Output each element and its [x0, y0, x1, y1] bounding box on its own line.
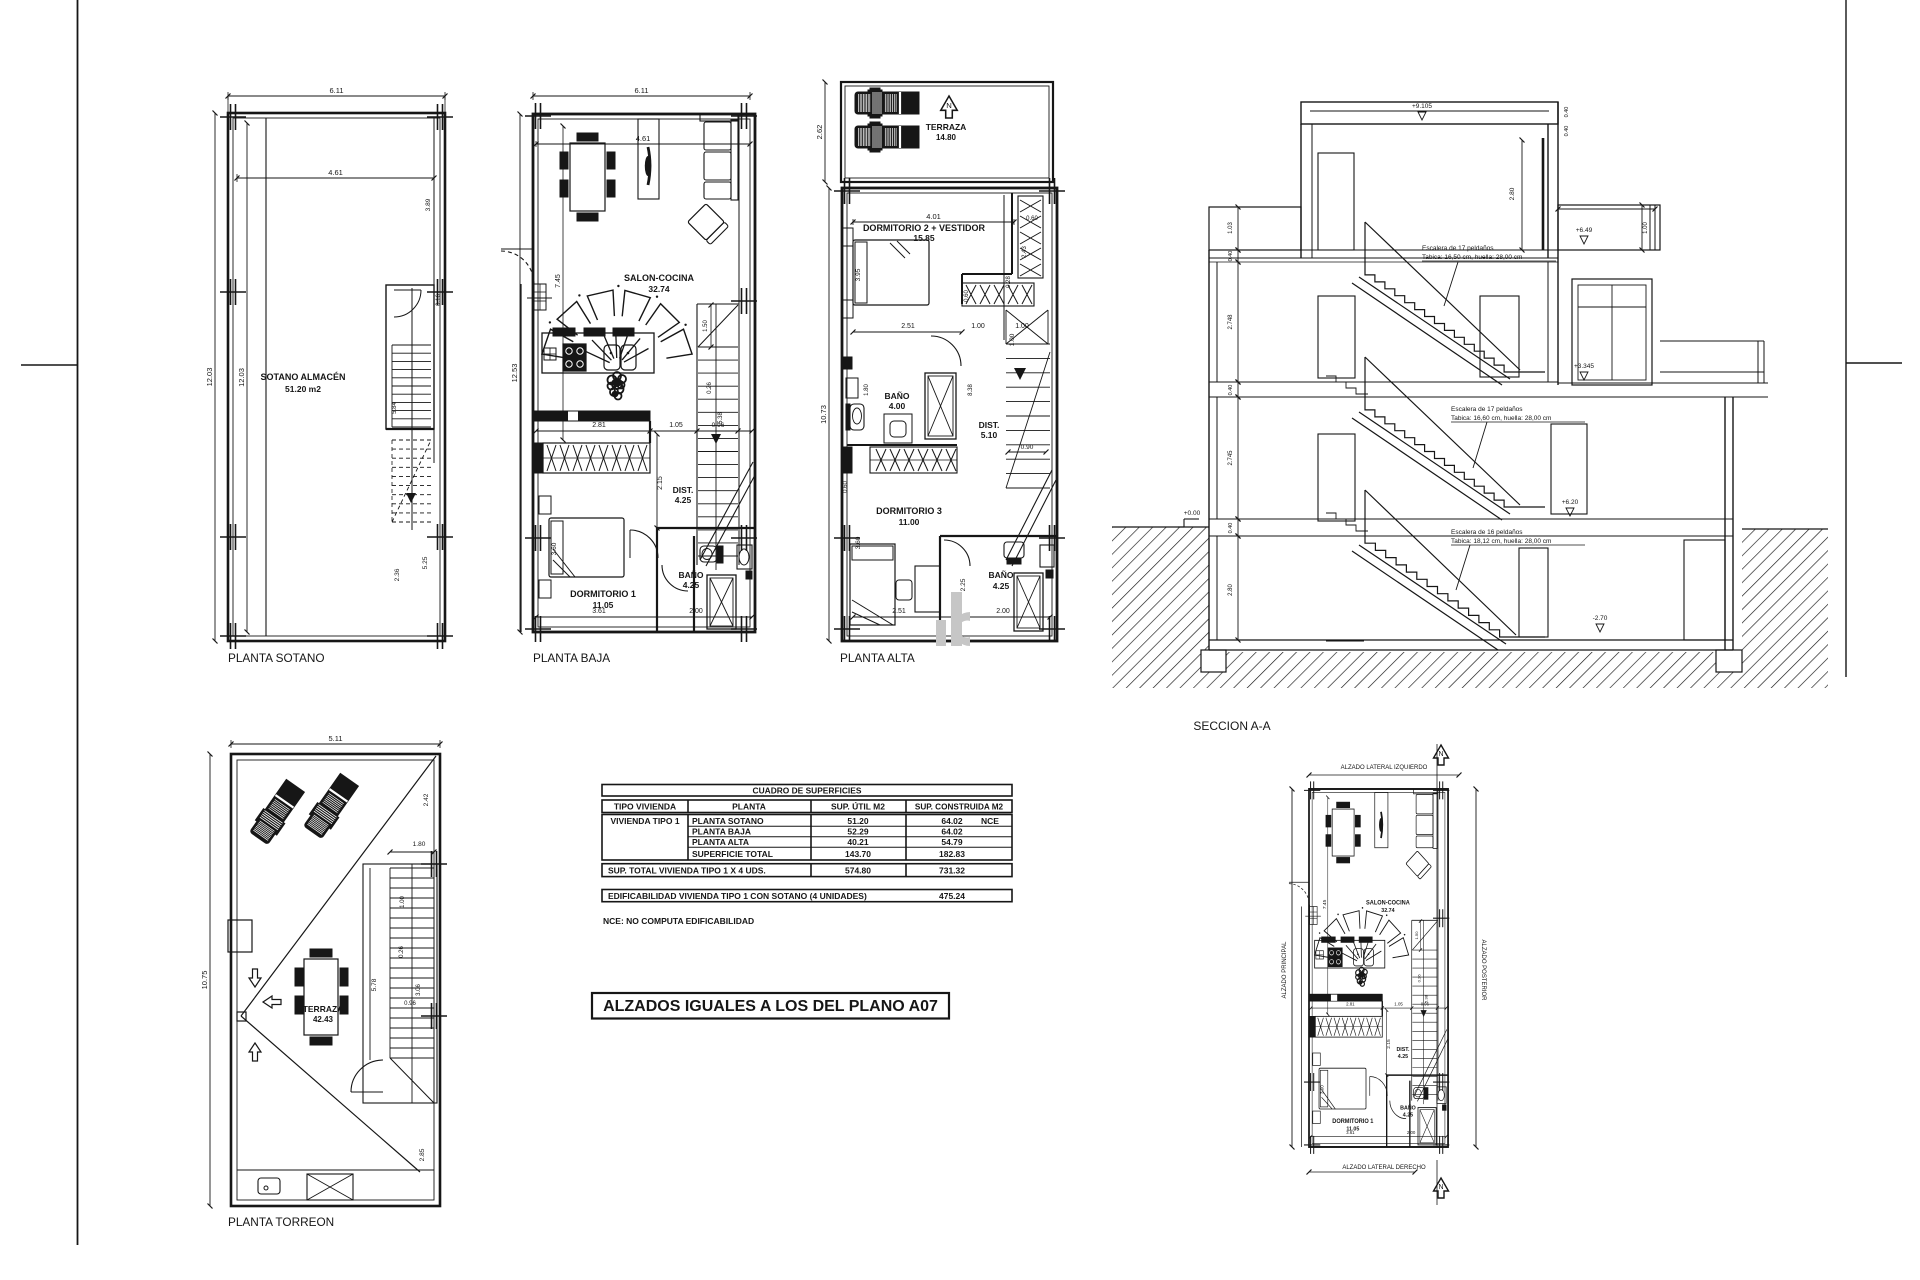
svg-text:SUPERFICIE TOTAL: SUPERFICIE TOTAL — [692, 849, 773, 859]
svg-text:VIVIENDA TIPO 1: VIVIENDA TIPO 1 — [610, 816, 679, 826]
svg-text:5.11: 5.11 — [328, 734, 342, 743]
svg-text:Escalera de 16 peldaños: Escalera de 16 peldaños — [1451, 529, 1523, 536]
svg-text:BAÑO: BAÑO — [678, 570, 703, 580]
svg-text:BAÑO: BAÑO — [884, 391, 909, 401]
svg-text:N: N — [1438, 1184, 1443, 1191]
svg-text:51.20 m2: 51.20 m2 — [285, 384, 321, 394]
svg-text:15.85: 15.85 — [913, 233, 935, 243]
svg-text:4.25: 4.25 — [683, 580, 700, 590]
svg-text:-2.70: -2.70 — [1593, 615, 1608, 622]
svg-text:3.60: 3.60 — [551, 542, 558, 555]
svg-text:2.62: 2.62 — [815, 125, 824, 140]
svg-text:SOTANO ALMACÉN: SOTANO ALMACÉN — [261, 372, 346, 382]
svg-text:4.61: 4.61 — [328, 168, 343, 177]
svg-text:4.25: 4.25 — [675, 495, 692, 505]
svg-text:3.95: 3.95 — [855, 268, 862, 281]
svg-text:0.40: 0.40 — [1228, 251, 1234, 262]
svg-text:10.73: 10.73 — [819, 405, 828, 424]
svg-text:51.20: 51.20 — [847, 816, 869, 826]
svg-text:PLANTA BAJA: PLANTA BAJA — [533, 651, 610, 665]
svg-text:2.745: 2.745 — [1228, 450, 1234, 466]
svg-text:7.45: 7.45 — [1322, 899, 1327, 909]
svg-text:1.03: 1.03 — [1228, 222, 1234, 234]
svg-text:SUP. ÚTIL M2: SUP. ÚTIL M2 — [831, 801, 885, 812]
svg-text:CUADRO DE SUPERFICIES: CUADRO DE SUPERFICIES — [753, 786, 862, 796]
svg-text:2.42: 2.42 — [423, 793, 430, 806]
svg-text:1.00: 1.00 — [971, 323, 985, 330]
svg-text:DORMITORIO 1: DORMITORIO 1 — [570, 589, 636, 599]
svg-text:64.02: 64.02 — [941, 827, 963, 837]
svg-text:0.26: 0.26 — [399, 946, 405, 958]
svg-text:2.43: 2.43 — [1022, 246, 1028, 258]
svg-text:NCE: NCE — [981, 816, 999, 826]
svg-text:0.40: 0.40 — [1564, 126, 1570, 137]
svg-text:1.80: 1.80 — [864, 384, 870, 396]
svg-text:0.26: 0.26 — [1417, 974, 1422, 983]
svg-text:42.43: 42.43 — [313, 1015, 334, 1024]
svg-text:SECCION A-A: SECCION A-A — [1193, 719, 1270, 733]
svg-text:0.40: 0.40 — [1228, 385, 1234, 396]
svg-text:NCE: NO COMPUTA EDIFICABILIDA: NCE: NO COMPUTA EDIFICABILIDAD — [603, 916, 754, 926]
svg-text:64.02: 64.02 — [941, 816, 963, 826]
svg-text:11.00: 11.00 — [899, 517, 920, 527]
svg-text:32.74: 32.74 — [1381, 908, 1395, 914]
svg-text:5.25: 5.25 — [422, 556, 429, 569]
svg-text:ALZADOS IGUALES A LOS DEL PLAN: ALZADOS IGUALES A LOS DEL PLANO A07 — [603, 998, 938, 1015]
svg-text:143.70: 143.70 — [845, 849, 871, 859]
svg-text:2.00: 2.00 — [996, 608, 1010, 615]
svg-text:3.60: 3.60 — [1320, 1085, 1325, 1094]
svg-text:Tabica: 16,50 cm, huella: 28,0: Tabica: 16,50 cm, huella: 28,00 cm — [1422, 254, 1522, 261]
svg-text:0.60: 0.60 — [843, 481, 849, 493]
svg-text:PLANTA: PLANTA — [732, 802, 766, 812]
svg-text:2.00: 2.00 — [689, 608, 703, 615]
svg-text:6.11: 6.11 — [329, 86, 343, 95]
svg-text:3.61: 3.61 — [592, 608, 606, 615]
svg-text:SUP. CONSTRUIDA M2: SUP. CONSTRUIDA M2 — [915, 803, 1004, 812]
svg-text:TIPO VIVIENDA: TIPO VIVIENDA — [614, 802, 676, 812]
svg-text:4.00: 4.00 — [889, 401, 906, 411]
svg-text:52.29: 52.29 — [847, 827, 869, 837]
svg-text:5.10: 5.10 — [981, 430, 998, 440]
svg-text:2.80: 2.80 — [1509, 187, 1516, 200]
svg-text:2.15: 2.15 — [657, 476, 664, 490]
svg-text:3.61: 3.61 — [1346, 1130, 1355, 1135]
svg-text:2.81: 2.81 — [1346, 1001, 1355, 1006]
svg-text:182.83: 182.83 — [939, 849, 965, 859]
svg-text:12.03: 12.03 — [237, 368, 246, 387]
svg-text:BAÑO: BAÑO — [988, 570, 1013, 580]
svg-text:N: N — [946, 101, 952, 110]
svg-text:2.25: 2.25 — [960, 578, 967, 591]
svg-text:DORMITORIO 3: DORMITORIO 3 — [876, 506, 942, 516]
svg-text:2.748: 2.748 — [1228, 314, 1234, 330]
svg-text:731.32: 731.32 — [939, 866, 965, 876]
svg-text:SALON-COCINA: SALON-COCINA — [1366, 900, 1410, 906]
svg-text:8.38: 8.38 — [968, 384, 974, 396]
svg-text:0.40: 0.40 — [1228, 523, 1234, 534]
svg-text:10.75: 10.75 — [200, 971, 209, 990]
svg-text:6.11: 6.11 — [634, 86, 648, 95]
svg-text:0.60: 0.60 — [1026, 216, 1038, 222]
svg-text:ALZADO POSTERIOR: ALZADO POSTERIOR — [1480, 939, 1486, 1001]
svg-text:1.05: 1.05 — [669, 422, 683, 429]
svg-text:2.15: 2.15 — [1386, 1039, 1391, 1049]
svg-text:PLANTA TORREON: PLANTA TORREON — [228, 1215, 334, 1229]
svg-text:TERRAZA: TERRAZA — [926, 122, 967, 132]
svg-text:SALON-COCINA: SALON-COCINA — [624, 273, 694, 283]
svg-text:ALZADO LATERAL DERECHO: ALZADO LATERAL DERECHO — [1342, 1165, 1426, 1171]
svg-text:4.01: 4.01 — [926, 212, 941, 221]
svg-text:0.60: 0.60 — [964, 290, 970, 302]
svg-text:1.50: 1.50 — [703, 320, 709, 332]
svg-text:7.45: 7.45 — [555, 274, 562, 288]
svg-text:DIST.: DIST. — [673, 485, 694, 495]
svg-text:475.24: 475.24 — [939, 891, 965, 901]
svg-text:2.80: 2.80 — [1228, 584, 1234, 596]
svg-text:Escalera de 17 peldaños: Escalera de 17 peldaños — [1451, 406, 1523, 413]
svg-text:40.21: 40.21 — [847, 837, 869, 847]
svg-text:+0.00: +0.00 — [1184, 510, 1201, 517]
svg-text:0.90: 0.90 — [1021, 444, 1034, 451]
svg-text:PLANTA ALTA: PLANTA ALTA — [840, 651, 915, 665]
svg-text:1.80: 1.80 — [413, 841, 426, 848]
svg-text:DORMITORIO 1: DORMITORIO 1 — [1332, 1119, 1374, 1125]
svg-text:2.51: 2.51 — [892, 608, 906, 615]
svg-text:PLANTA SOTANO: PLANTA SOTANO — [692, 816, 764, 826]
svg-text:ALZADO LATERAL IZQUIERDO: ALZADO LATERAL IZQUIERDO — [1341, 765, 1428, 771]
svg-text:54.79: 54.79 — [941, 837, 963, 847]
svg-text:0.96: 0.96 — [404, 1001, 416, 1007]
svg-text:1.00: 1.00 — [400, 896, 406, 908]
svg-text:5.38: 5.38 — [1424, 994, 1429, 1003]
svg-text:4.25: 4.25 — [1403, 1112, 1413, 1118]
svg-text:2.81: 2.81 — [592, 422, 606, 429]
svg-text:0.40: 0.40 — [1564, 107, 1570, 118]
svg-text:0.28: 0.28 — [1006, 276, 1012, 288]
svg-text:1.00: 1.00 — [1643, 222, 1649, 234]
svg-text:Tabica: 18,12 cm, huella: 28,0: Tabica: 18,12 cm, huella: 28,00 cm — [1451, 538, 1551, 545]
svg-text:12.53: 12.53 — [510, 364, 519, 383]
svg-text:PLANTA SOTANO: PLANTA SOTANO — [228, 651, 325, 665]
svg-text:3.89: 3.89 — [425, 198, 432, 211]
svg-text:Escalera de 17 peldaños: Escalera de 17 peldaños — [1422, 245, 1494, 252]
svg-text:2.00: 2.00 — [1407, 1130, 1416, 1135]
svg-text:DIST.: DIST. — [1396, 1047, 1409, 1053]
svg-text:Tabica: 16,60 cm, huella: 28,0: Tabica: 16,60 cm, huella: 28,00 cm — [1451, 415, 1551, 422]
svg-text:+9.105: +9.105 — [1412, 103, 1432, 110]
svg-text:0.26: 0.26 — [707, 382, 713, 394]
svg-text:1.05: 1.05 — [1394, 1001, 1403, 1006]
svg-text:+3.345: +3.345 — [1574, 363, 1594, 370]
svg-text:SUP. TOTAL VIVIENDA TIPO 1 X 4: SUP. TOTAL VIVIENDA TIPO 1 X 4 UDS. — [608, 866, 766, 876]
svg-text:BAÑO: BAÑO — [1400, 1104, 1416, 1111]
svg-text:32.74: 32.74 — [648, 284, 670, 294]
svg-text:5.38: 5.38 — [718, 412, 724, 424]
svg-text:14.80: 14.80 — [936, 133, 957, 142]
svg-text:+6.20: +6.20 — [1562, 499, 1579, 506]
svg-text:1.50: 1.50 — [1414, 931, 1419, 940]
svg-text:2.36: 2.36 — [394, 568, 401, 581]
svg-text:EDIFICABILIDAD VIVIENDA TIPO 1: EDIFICABILIDAD VIVIENDA TIPO 1 CON SOTAN… — [608, 891, 867, 901]
svg-text:DORMITORIO 2 + VESTIDOR: DORMITORIO 2 + VESTIDOR — [863, 223, 986, 233]
svg-text:DIST.: DIST. — [979, 420, 1000, 430]
svg-text:5.84: 5.84 — [392, 402, 398, 414]
svg-text:4.25: 4.25 — [1398, 1054, 1408, 1060]
svg-text:5.78: 5.78 — [371, 978, 378, 991]
svg-text:3.06: 3.06 — [416, 984, 422, 996]
svg-text:PLANTA ALTA: PLANTA ALTA — [692, 837, 749, 847]
svg-text:2.51: 2.51 — [901, 323, 915, 330]
svg-text:TERRAZA: TERRAZA — [303, 1004, 344, 1014]
svg-text:ALZADO PRINCIPAL: ALZADO PRINCIPAL — [1282, 941, 1288, 999]
svg-text:+6.49: +6.49 — [1576, 227, 1593, 234]
svg-text:PLANTA BAJA: PLANTA BAJA — [692, 827, 751, 837]
svg-text:574.80: 574.80 — [845, 866, 871, 876]
svg-text:12.03: 12.03 — [205, 368, 214, 387]
svg-text:N: N — [1438, 751, 1443, 758]
svg-text:2.85: 2.85 — [419, 1148, 426, 1161]
svg-text:4.25: 4.25 — [993, 581, 1010, 591]
